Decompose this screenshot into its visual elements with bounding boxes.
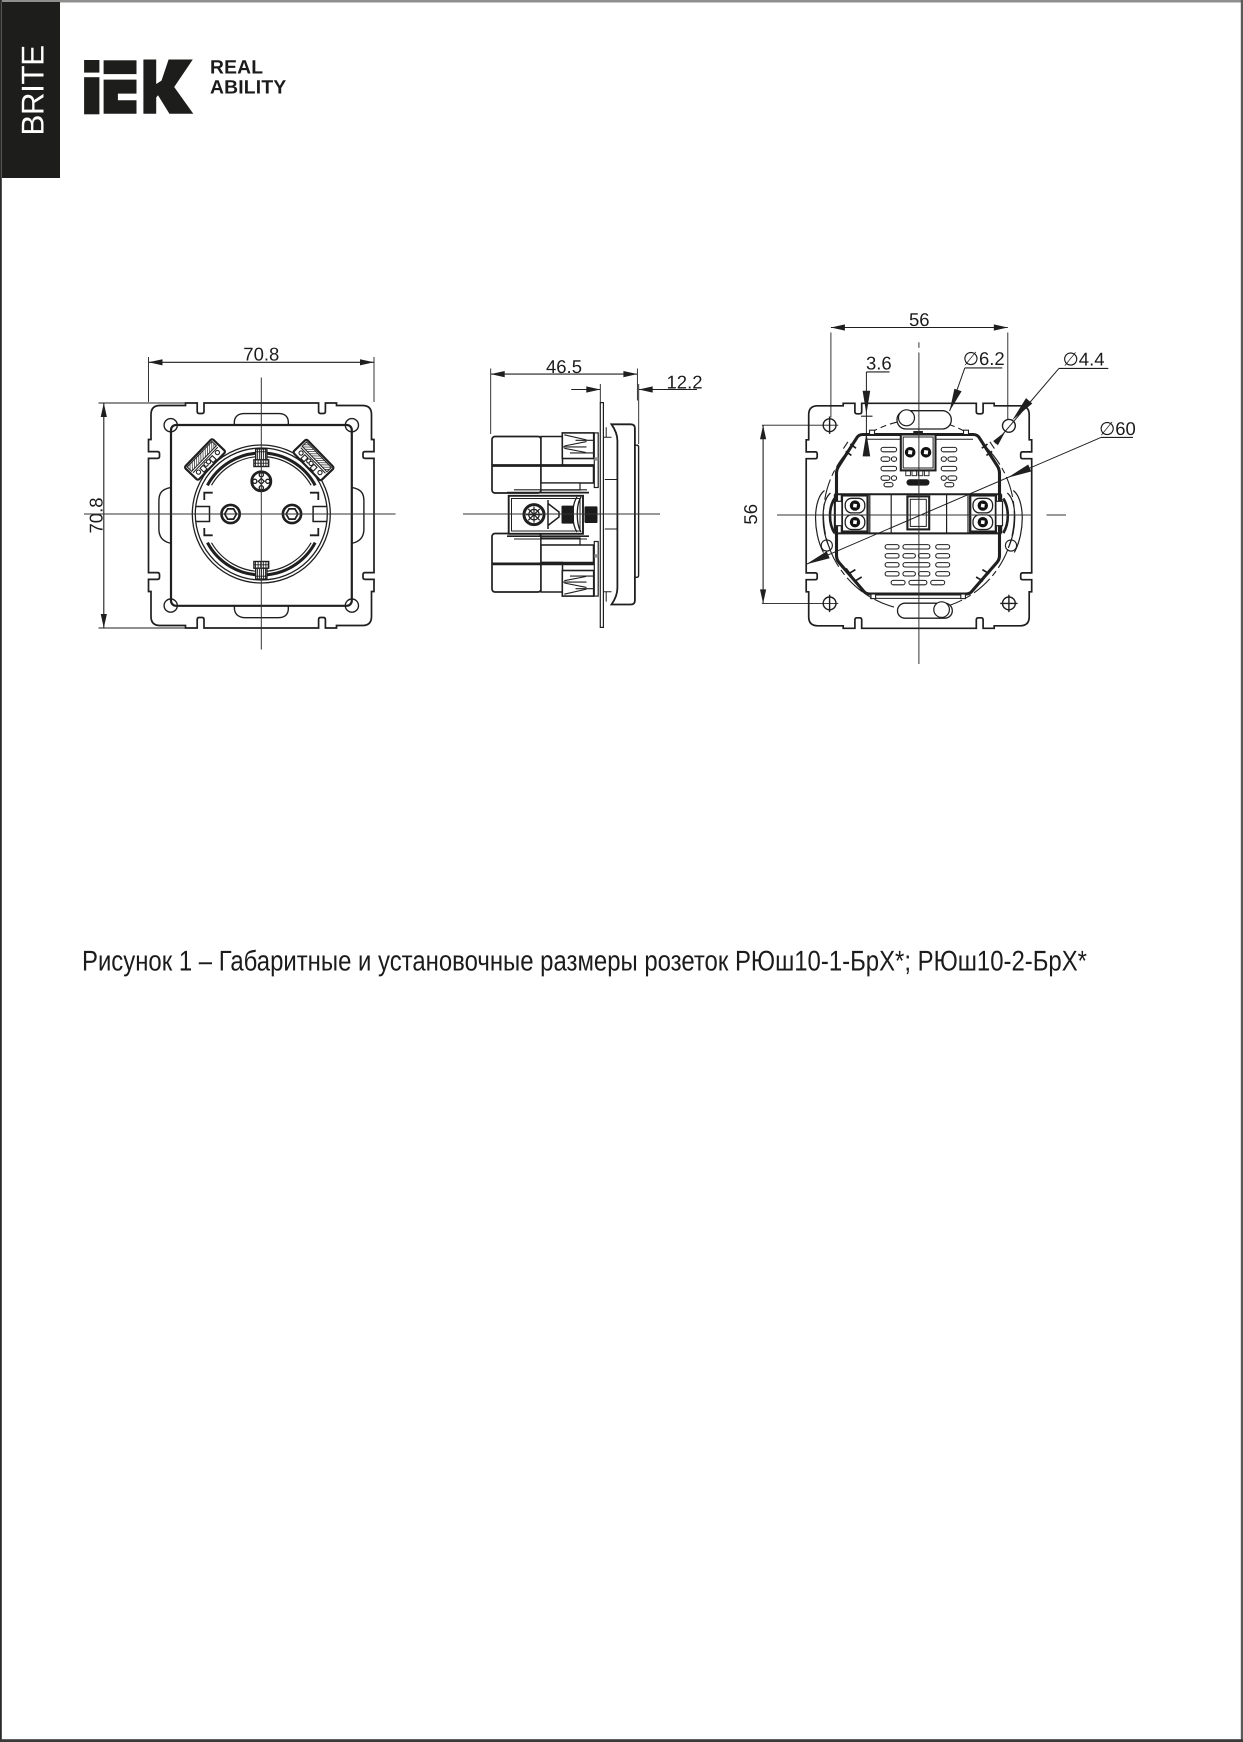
svg-text:46.5: 46.5 [546, 356, 582, 377]
svg-text:REAL: REAL [210, 57, 263, 78]
svg-text:56: 56 [909, 309, 930, 330]
svg-text:70.8: 70.8 [86, 497, 107, 533]
svg-text:BRITE: BRITE [15, 45, 51, 135]
svg-text:∅4.4: ∅4.4 [1063, 348, 1105, 369]
svg-text:56: 56 [740, 504, 761, 525]
svg-text:ABILITY: ABILITY [210, 78, 286, 99]
svg-text:70.8: 70.8 [243, 344, 279, 365]
svg-text:Рисунок 1 – Габаритные и устан: Рисунок 1 – Габаритные и установочные ра… [82, 946, 1087, 978]
svg-text:12.2: 12.2 [667, 372, 703, 393]
svg-text:3.6: 3.6 [866, 353, 892, 374]
svg-text:∅6.2: ∅6.2 [963, 348, 1005, 369]
svg-text:∅60: ∅60 [1099, 418, 1136, 439]
